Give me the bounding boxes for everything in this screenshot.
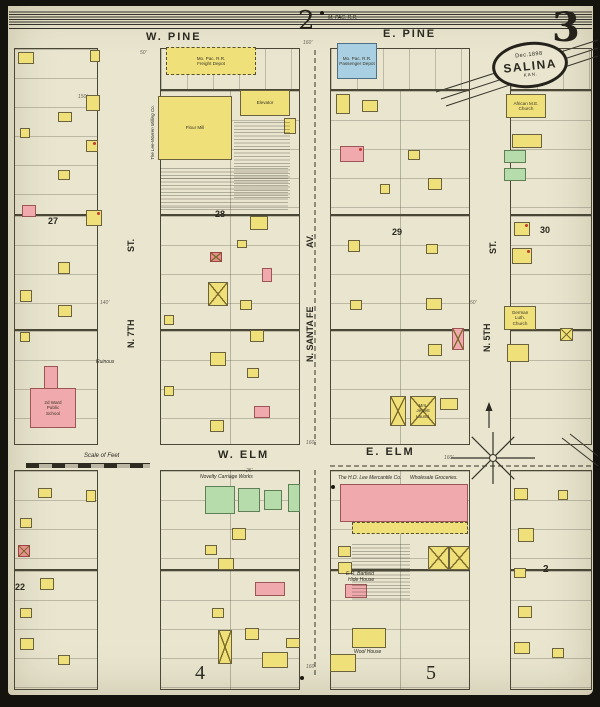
city-block-outline [330, 330, 470, 445]
building [426, 298, 442, 310]
lot-dimension-label: 25' [246, 468, 253, 474]
passenger-depot-label: Mo. Pac. R.R. Passenger Depot [338, 55, 376, 68]
lee-warren-milling-label: The Lee-Warren Milling Co. [150, 105, 155, 160]
lot-dimension-label: 50' [470, 300, 477, 306]
chimney-dot [93, 142, 96, 145]
map-items-layer: Mo. Pac. R.R. Freight DepotMo. Pac. R.R.… [0, 0, 600, 707]
block-number: 29 [392, 227, 402, 237]
building [164, 315, 174, 325]
lot-dimension-label: 50' [140, 50, 147, 56]
hd-lee-label: The H.D. Lee Mercantile Co. [338, 475, 401, 481]
building [238, 488, 260, 512]
building [262, 652, 288, 668]
lot-dimension-label: 160' [306, 664, 315, 670]
building [330, 654, 356, 672]
african-me-church-label: African M.E. Church [512, 100, 539, 113]
german-lutheran-church: German Luth. Church [504, 306, 536, 330]
building [218, 630, 232, 664]
block-number: 4 [195, 662, 205, 685]
building [514, 488, 528, 500]
building [348, 240, 360, 252]
building [218, 558, 234, 570]
block-number: 28 [215, 209, 225, 219]
building [514, 568, 526, 578]
lot-dimension-label: 160' [444, 455, 453, 461]
building [514, 642, 530, 654]
building [240, 300, 252, 310]
building [237, 240, 247, 248]
building [262, 268, 272, 282]
building [514, 222, 530, 236]
building [250, 216, 268, 230]
building [428, 546, 449, 570]
building [20, 638, 34, 650]
block-number: 5 [426, 662, 436, 685]
jewett-laundry-label: Mrs. Jewett Laund. [411, 402, 435, 420]
building [205, 545, 217, 555]
elevator: Elevator [240, 90, 290, 116]
building [247, 368, 259, 378]
city-block-outline [160, 470, 300, 570]
city-block-outline [160, 215, 300, 330]
sheet-number: 3 [552, 4, 580, 51]
lot-dimension-label: 150' [78, 94, 87, 100]
building [408, 150, 420, 160]
water-facility-dot [320, 11, 324, 15]
building [288, 484, 300, 512]
chimney-dot [525, 224, 528, 227]
building [40, 578, 54, 590]
building [58, 112, 72, 122]
novelty-carriage-works-label: Novelty Carriage Works [200, 474, 253, 480]
building [210, 252, 222, 262]
building [428, 344, 442, 356]
building [426, 244, 438, 254]
building [512, 248, 532, 264]
city-block-outline [510, 570, 592, 690]
building [560, 328, 573, 341]
building [449, 546, 470, 570]
flour-mill-label: Flour Mill [185, 124, 206, 131]
freight-depot-label: Mo. Pac. R.R. Freight Depot [196, 55, 227, 68]
building [390, 396, 406, 426]
building [350, 300, 362, 310]
building [38, 488, 52, 498]
building [264, 490, 282, 510]
ward-school-tower [44, 366, 58, 390]
building [18, 545, 30, 557]
german-lutheran-church-label: German Luth. Church [505, 309, 535, 327]
street-label-w-elm: W. ELM [218, 449, 269, 461]
block-number: 2 [543, 564, 549, 575]
ward-school-label: 2d Ward Public School [43, 399, 62, 417]
novelty-carriage-works-building [205, 486, 235, 514]
building [58, 655, 70, 665]
block-number: 27 [48, 216, 58, 226]
building [20, 332, 30, 342]
building [507, 344, 529, 362]
building [86, 140, 98, 152]
street-label-n-5th: N. 5TH [482, 323, 492, 352]
building [338, 546, 351, 557]
freight-depot: Mo. Pac. R.R. Freight Depot [166, 47, 256, 75]
street-label-n-5th: ST. [488, 241, 498, 254]
jewett-laundry: Mrs. Jewett Laund. [410, 396, 436, 426]
wool-house-label: Wool House [354, 649, 381, 655]
building [518, 606, 532, 618]
building [452, 328, 464, 350]
building [90, 50, 100, 62]
african-me-church: African M.E. Church [506, 94, 546, 118]
lot-dimension-label: 160' [303, 40, 312, 46]
wool-house [352, 628, 386, 648]
block-number: 22 [15, 582, 25, 592]
building [340, 146, 364, 162]
block-number: 30 [540, 225, 550, 235]
building [558, 490, 568, 500]
street-label-n-7th: N. 7TH [126, 319, 136, 348]
chimney-dot [97, 212, 100, 215]
scale-bar [26, 463, 150, 468]
water-facility-dot [300, 676, 304, 680]
building [504, 150, 526, 163]
building [86, 95, 100, 111]
building [250, 330, 264, 342]
sanborn-map-sheet: Mo. Pac. R.R. Freight DepotMo. Pac. R.R.… [0, 0, 600, 707]
loading-platform [352, 522, 468, 534]
building [440, 398, 458, 410]
chimney-dot [527, 250, 530, 253]
city-block-outline [160, 330, 300, 445]
street-label-e-pine: E. PINE [383, 28, 436, 40]
passenger-depot: Mo. Pac. R.R. Passenger Depot [337, 43, 377, 79]
building [20, 290, 32, 302]
building [22, 205, 36, 217]
fine-print-block [160, 168, 288, 212]
street-label-n-7th: ST. [126, 239, 136, 252]
building [210, 352, 226, 366]
building [208, 282, 228, 306]
building [18, 52, 34, 64]
hd-lee-building [340, 484, 468, 522]
adjacent-sheet-number: 2 [298, 6, 315, 36]
building [58, 305, 72, 317]
street-label-w-pine: W. PINE [146, 31, 202, 43]
building [20, 128, 30, 138]
ward-school: 2d Ward Public School [30, 388, 76, 428]
barfield-label: Hide House [348, 577, 374, 583]
city-block-outline [14, 215, 98, 330]
lot-dimension-label: 160' [306, 440, 315, 446]
building [336, 94, 350, 114]
street-label-santa-fe: AV. [305, 234, 315, 248]
building [362, 100, 378, 112]
building [552, 648, 564, 658]
city-block-outline [510, 470, 592, 570]
chimney-dot [359, 148, 362, 151]
street-label-e-elm: E. ELM [366, 446, 415, 458]
building [20, 608, 32, 618]
seal-state: KAN. [524, 72, 539, 78]
building [86, 210, 102, 226]
building [286, 638, 300, 648]
street-label-santa-fe: N. SANTA FE [305, 307, 315, 363]
building [164, 386, 174, 396]
building [210, 420, 224, 432]
building [20, 518, 32, 528]
ruinous-note: Ruinous [96, 359, 114, 365]
scale-label: Scale of Feet [84, 453, 119, 459]
building [58, 262, 70, 274]
building [518, 528, 534, 542]
building [504, 168, 526, 181]
flour-mill: Flour Mill [158, 96, 232, 160]
elevator-label: Elevator [256, 99, 275, 106]
lot-dimension-label: 140' [100, 300, 109, 306]
building [58, 170, 70, 180]
railroad-label: M. PAC. R.R. [328, 15, 358, 21]
building [428, 178, 442, 190]
building [245, 628, 259, 640]
building [380, 184, 390, 194]
building [254, 406, 270, 418]
building [86, 490, 96, 502]
building [512, 134, 542, 148]
building [232, 528, 246, 540]
water-facility-dot [331, 485, 335, 489]
city-block-outline [14, 570, 98, 690]
hd-lee-label: Wholesale Groceries. [410, 475, 458, 481]
building [255, 582, 285, 596]
building [212, 608, 224, 618]
